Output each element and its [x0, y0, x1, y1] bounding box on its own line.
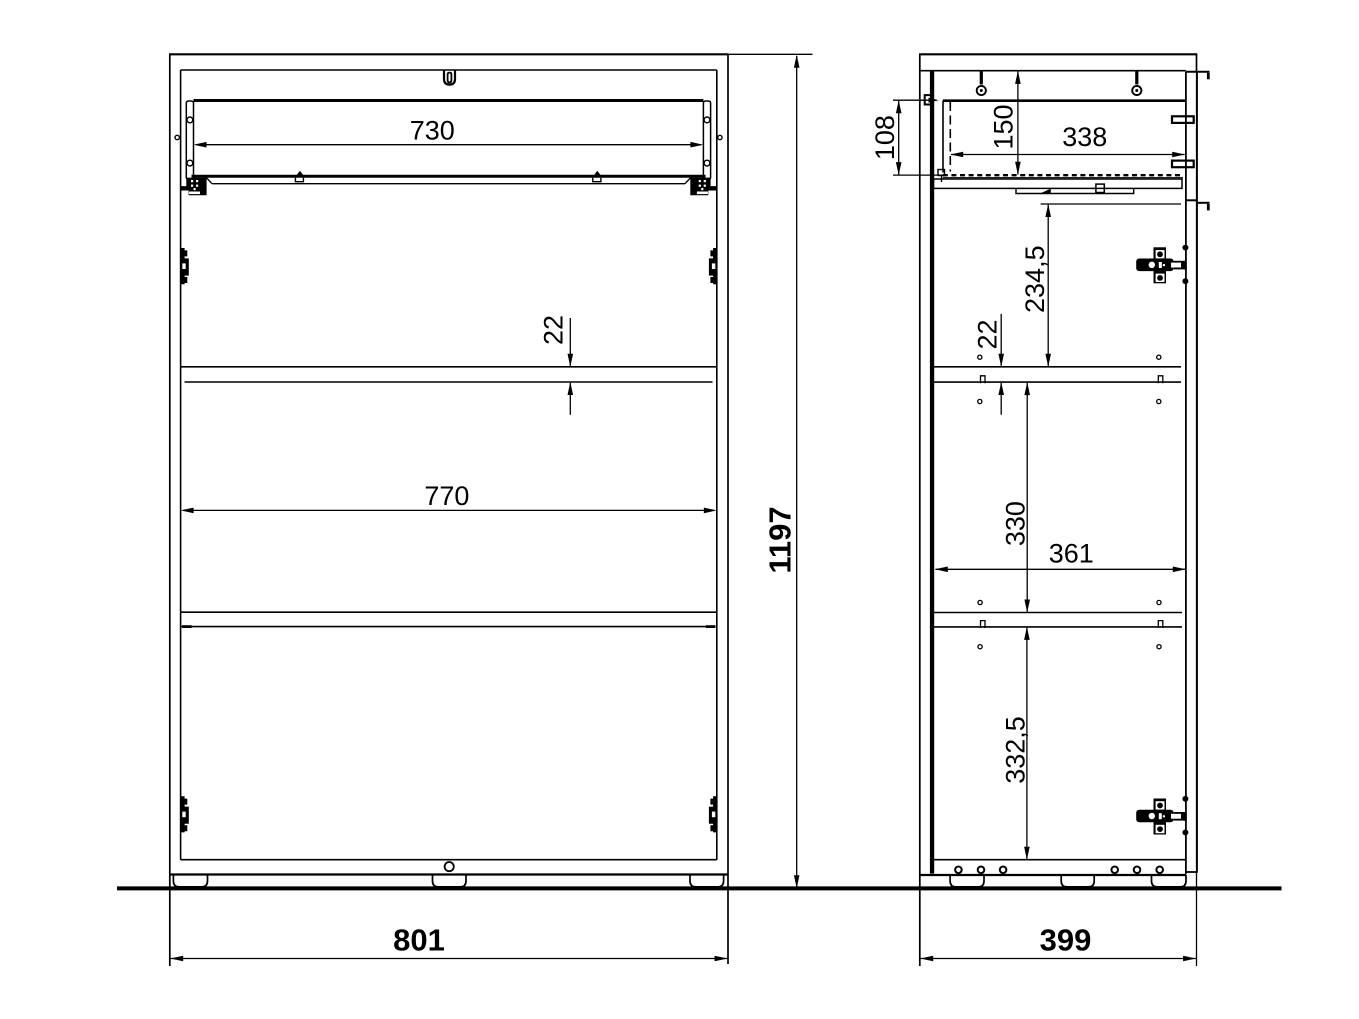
svg-text:801: 801	[393, 922, 445, 957]
svg-text:770: 770	[424, 481, 469, 511]
svg-text:1197: 1197	[763, 506, 798, 573]
svg-text:22: 22	[972, 319, 1002, 349]
svg-text:730: 730	[410, 116, 455, 146]
svg-text:399: 399	[1040, 922, 1092, 957]
svg-text:338: 338	[1062, 122, 1107, 152]
svg-text:150: 150	[989, 104, 1019, 149]
svg-text:234,5: 234,5	[1020, 245, 1050, 313]
svg-text:108: 108	[870, 115, 900, 160]
svg-text:22: 22	[538, 315, 568, 345]
svg-text:361: 361	[1049, 539, 1094, 569]
svg-text:332,5: 332,5	[1000, 716, 1030, 784]
svg-text:330: 330	[1000, 501, 1030, 546]
